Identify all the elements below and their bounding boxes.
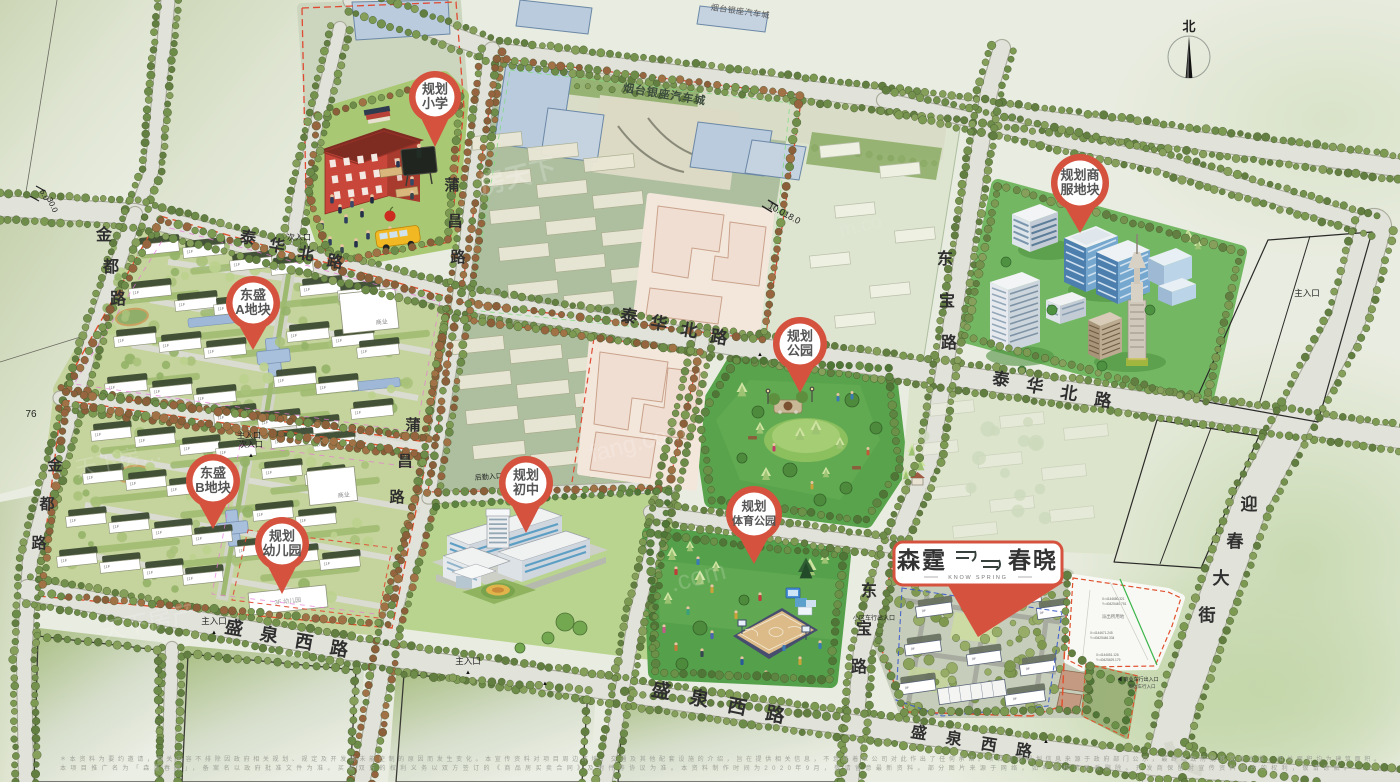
svg-text:11F: 11F bbox=[319, 385, 327, 391]
svg-text:宝: 宝 bbox=[939, 291, 955, 310]
svg-text:路: 路 bbox=[110, 289, 127, 308]
svg-text:派出所用地: 派出所用地 bbox=[1102, 613, 1125, 620]
svg-text:路: 路 bbox=[31, 534, 47, 552]
svg-text:周边车行入口: 周边车行入口 bbox=[1129, 683, 1156, 690]
svg-text:规划: 规划 bbox=[269, 529, 295, 544]
svg-text:Y=40425446.334: Y=40425446.334 bbox=[1090, 636, 1115, 640]
svg-text:11F: 11F bbox=[162, 343, 170, 349]
svg-text:主入口: 主入口 bbox=[455, 656, 481, 666]
svg-text:11F: 11F bbox=[146, 570, 154, 576]
svg-text:▲: ▲ bbox=[542, 681, 548, 687]
svg-text:规划: 规划 bbox=[741, 499, 766, 514]
svg-text:北: 北 bbox=[679, 320, 699, 341]
svg-text:路: 路 bbox=[941, 333, 958, 352]
svg-text:路: 路 bbox=[389, 488, 405, 506]
svg-text:金: 金 bbox=[46, 456, 63, 474]
svg-text:11F: 11F bbox=[132, 290, 140, 296]
svg-text:X=4144680.321: X=4144680.321 bbox=[1102, 597, 1125, 601]
svg-text:11F: 11F bbox=[290, 333, 298, 339]
svg-text:＊本资料为要约邀请，相关内容不排除因政府相关规划、规定及开发: ＊本资料为要约邀请，相关内容不排除因政府相关规划、规定及开发商未能控制的原因而发… bbox=[60, 755, 1380, 763]
svg-text:西: 西 bbox=[726, 695, 749, 719]
svg-text:11F: 11F bbox=[238, 548, 246, 554]
svg-text:11F: 11F bbox=[129, 481, 137, 487]
svg-text:华: 华 bbox=[649, 312, 669, 334]
svg-text:规划商: 规划商 bbox=[1060, 168, 1099, 183]
svg-text:11F: 11F bbox=[299, 518, 307, 524]
svg-text:KNOW SPRING: KNOW SPRING bbox=[948, 575, 1008, 581]
svg-text:▲: ▲ bbox=[248, 453, 254, 459]
svg-text:11F: 11F bbox=[265, 470, 273, 476]
svg-text:北: 北 bbox=[1059, 383, 1079, 404]
svg-text:路: 路 bbox=[851, 657, 868, 676]
svg-text:X=4144671.245: X=4144671.245 bbox=[1090, 631, 1113, 635]
svg-text:11F: 11F bbox=[303, 287, 311, 293]
svg-text:北: 北 bbox=[296, 244, 315, 265]
svg-text:11F: 11F bbox=[256, 512, 264, 518]
svg-text:11F: 11F bbox=[170, 487, 178, 493]
svg-text:西: 西 bbox=[979, 735, 998, 755]
svg-text:◀ 商业车行出入口: ◀ 商业车行出入口 bbox=[1117, 676, 1158, 683]
svg-text:Y=40425440.751: Y=40425440.751 bbox=[1102, 602, 1127, 606]
svg-text:都: 都 bbox=[38, 496, 54, 513]
svg-text:大: 大 bbox=[1213, 568, 1230, 588]
svg-text:主入口: 主入口 bbox=[201, 616, 227, 626]
svg-text:东: 东 bbox=[861, 581, 877, 600]
svg-text:▲: ▲ bbox=[211, 630, 217, 636]
svg-text:次入口: 次入口 bbox=[239, 439, 263, 449]
svg-text:11F: 11F bbox=[277, 378, 285, 384]
svg-text:北: 北 bbox=[1182, 19, 1195, 34]
svg-text:▲: ▲ bbox=[697, 692, 703, 698]
svg-text:街: 街 bbox=[1198, 605, 1216, 625]
svg-text:11F: 11F bbox=[108, 385, 116, 391]
svg-text:B地块: B地块 bbox=[195, 480, 231, 495]
svg-text:小区车行出入口: 小区车行出入口 bbox=[853, 614, 895, 622]
svg-text:11F: 11F bbox=[94, 432, 102, 438]
svg-text:华: 华 bbox=[1025, 375, 1045, 397]
svg-text:11F: 11F bbox=[186, 249, 194, 255]
svg-text:小学: 小学 bbox=[422, 96, 448, 111]
svg-text:9F: 9F bbox=[1013, 697, 1018, 702]
svg-text:规划: 规划 bbox=[787, 329, 813, 344]
svg-text:A地块: A地块 bbox=[235, 302, 271, 317]
svg-text:东: 东 bbox=[937, 249, 953, 268]
svg-text:幼儿园: 幼儿园 bbox=[262, 543, 301, 558]
svg-text:春晓: 春晓 bbox=[1007, 547, 1058, 573]
svg-text:体育公园: 体育公园 bbox=[732, 514, 776, 528]
svg-text:迎: 迎 bbox=[1241, 494, 1258, 514]
svg-text:9F: 9F bbox=[911, 647, 916, 652]
svg-text:盛: 盛 bbox=[909, 722, 928, 743]
svg-text:11F: 11F bbox=[103, 564, 111, 570]
svg-text:9F: 9F bbox=[1026, 667, 1031, 672]
svg-text:9F: 9F bbox=[1040, 611, 1045, 616]
svg-text:11F: 11F bbox=[323, 561, 331, 567]
svg-text:都: 都 bbox=[102, 257, 119, 276]
svg-text:东盛: 东盛 bbox=[240, 288, 266, 303]
svg-text:9F: 9F bbox=[972, 657, 977, 662]
svg-text:11F: 11F bbox=[186, 576, 194, 582]
svg-text:11F: 11F bbox=[354, 410, 362, 416]
svg-text:春: 春 bbox=[1227, 531, 1244, 551]
svg-text:服地块: 服地块 bbox=[1060, 182, 1100, 197]
svg-text:主入口: 主入口 bbox=[237, 430, 261, 440]
svg-text:76: 76 bbox=[25, 409, 37, 420]
svg-text:9F: 9F bbox=[905, 686, 910, 691]
svg-text:昌: 昌 bbox=[447, 213, 462, 230]
svg-text:11F: 11F bbox=[360, 349, 368, 355]
svg-text:蒲: 蒲 bbox=[444, 176, 459, 194]
svg-text:11F: 11F bbox=[178, 302, 186, 308]
svg-text:路: 路 bbox=[450, 248, 466, 266]
svg-text:次入口: 次入口 bbox=[287, 232, 311, 242]
svg-text:Y=40425629.179: Y=40425629.179 bbox=[1096, 658, 1121, 662]
svg-text:11F: 11F bbox=[183, 446, 191, 452]
svg-text:▲: ▲ bbox=[1043, 739, 1049, 745]
svg-text:昌: 昌 bbox=[397, 453, 412, 470]
svg-text:西: 西 bbox=[293, 631, 314, 654]
svg-text:11F: 11F bbox=[219, 450, 227, 456]
svg-text:X=4144651.126: X=4144651.126 bbox=[1096, 653, 1119, 657]
svg-text:初中: 初中 bbox=[513, 482, 539, 497]
svg-text:11F: 11F bbox=[197, 396, 205, 402]
svg-text:11F: 11F bbox=[207, 349, 215, 355]
svg-text:金: 金 bbox=[95, 225, 113, 244]
svg-text:▲: ▲ bbox=[465, 670, 471, 676]
svg-text:11F: 11F bbox=[117, 338, 125, 344]
svg-text:森霆: 森霆 bbox=[897, 547, 947, 573]
svg-text:规划: 规划 bbox=[513, 468, 539, 483]
svg-text:11F: 11F bbox=[69, 518, 77, 524]
svg-text:11F: 11F bbox=[195, 536, 203, 542]
svg-text:11F: 11F bbox=[335, 338, 343, 344]
svg-text:11F: 11F bbox=[217, 306, 225, 312]
svg-text:主入口: 主入口 bbox=[1294, 288, 1320, 298]
svg-text:▲: ▲ bbox=[757, 352, 763, 358]
svg-text:规划: 规划 bbox=[422, 82, 448, 97]
svg-text:11F: 11F bbox=[60, 558, 68, 564]
svg-text:公园: 公园 bbox=[787, 343, 813, 358]
svg-text:东盛: 东盛 bbox=[200, 466, 226, 481]
svg-text:11F: 11F bbox=[233, 262, 241, 268]
svg-text:11F: 11F bbox=[153, 389, 161, 395]
svg-text:11F: 11F bbox=[155, 530, 163, 536]
svg-text:11F: 11F bbox=[112, 524, 120, 530]
svg-text:蒲: 蒲 bbox=[405, 416, 420, 434]
svg-text:9F: 9F bbox=[922, 609, 927, 614]
